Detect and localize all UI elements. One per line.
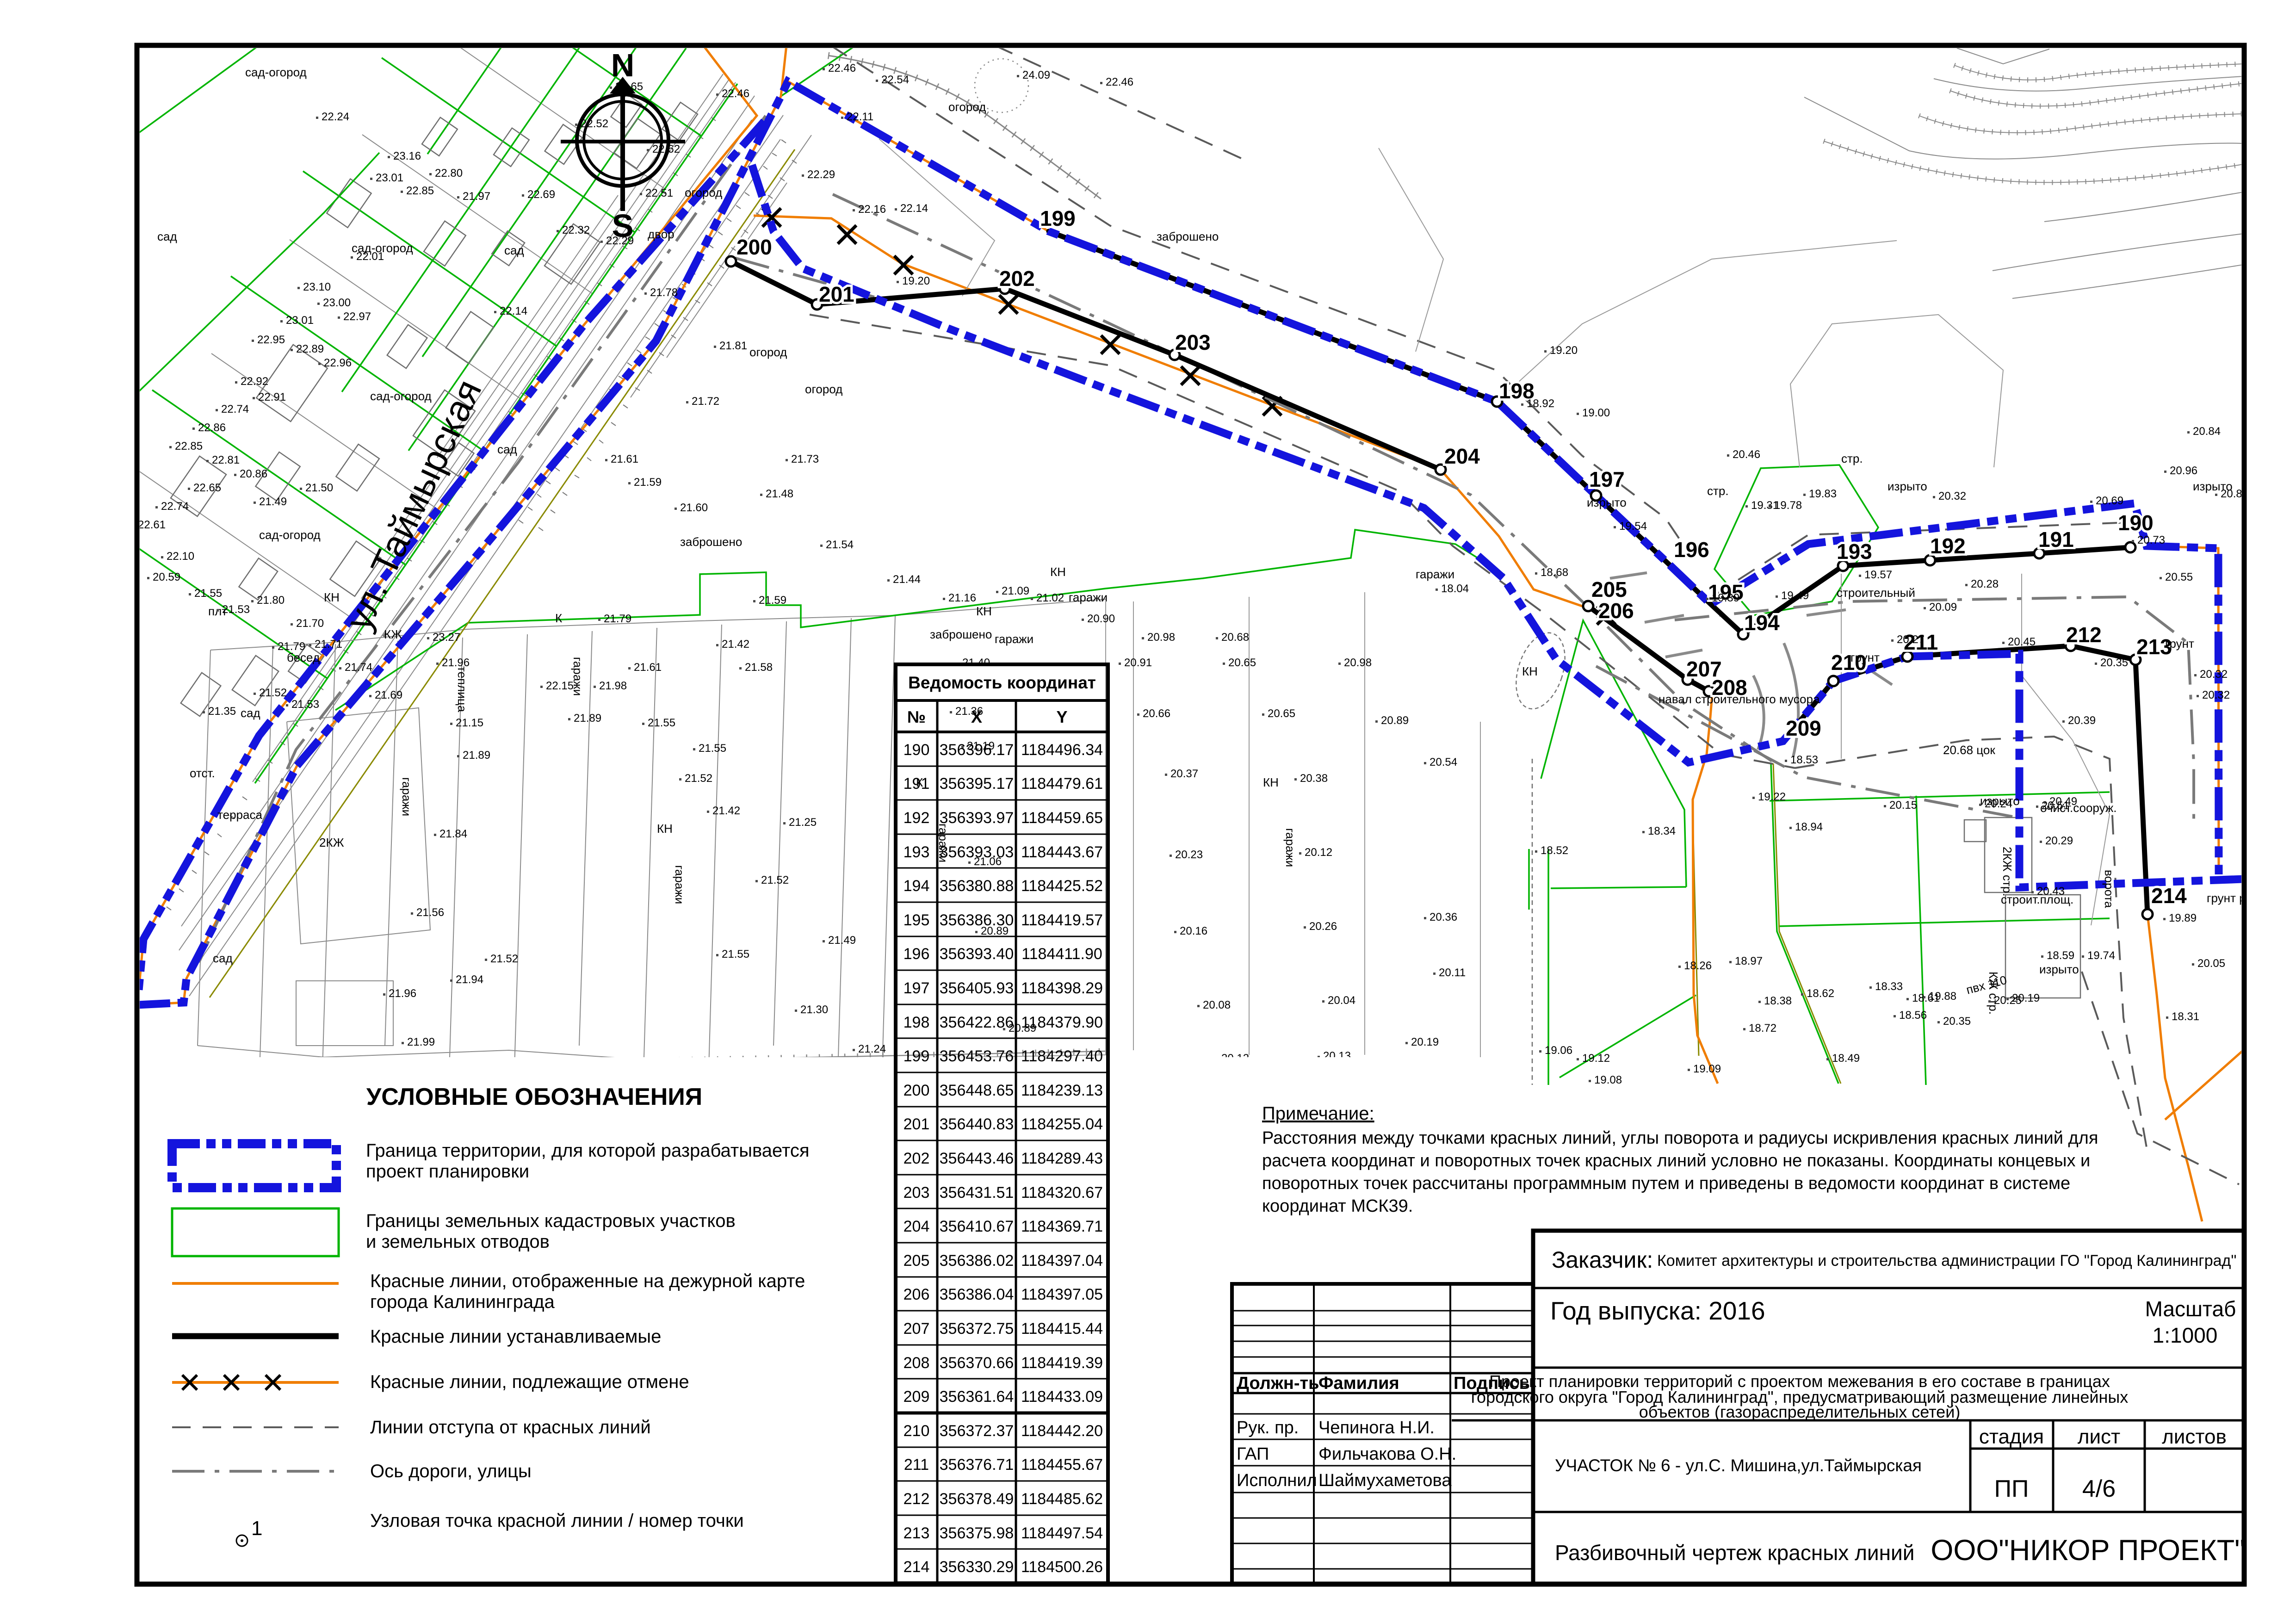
svg-text:199: 199: [904, 1047, 930, 1065]
svg-text:1184239.13: 1184239.13: [1021, 1082, 1103, 1099]
svg-text:листов: листов: [2162, 1425, 2227, 1448]
svg-text:22.61: 22.61: [138, 519, 166, 531]
svg-text:№: №: [907, 707, 926, 726]
svg-text:21.16: 21.16: [948, 592, 976, 604]
svg-text:21.25: 21.25: [789, 816, 817, 829]
svg-text:21.71: 21.71: [315, 638, 342, 650]
svg-text:21.69: 21.69: [375, 689, 402, 701]
svg-text:20.90: 20.90: [1087, 613, 1115, 625]
svg-text:197: 197: [904, 979, 930, 997]
svg-text:УЧАСТОК № 6 - ул.С. Мишина,ул.: УЧАСТОК № 6 - ул.С. Мишина,ул.Таймырская: [1555, 1456, 1922, 1475]
svg-text:координат МСК39.: координат МСК39.: [1262, 1196, 1413, 1216]
svg-text:1184289.43: 1184289.43: [1021, 1150, 1103, 1167]
svg-text:18.04: 18.04: [1441, 582, 1469, 595]
svg-text:20.04: 20.04: [1328, 994, 1355, 1007]
svg-text:грунт: грунт: [1850, 650, 1880, 664]
svg-text:18.49: 18.49: [1832, 1052, 1860, 1065]
svg-text:сад-огород: сад-огород: [259, 528, 321, 542]
svg-text:19.78: 19.78: [1774, 499, 1802, 512]
svg-text:проект планировки: проект планировки: [366, 1161, 529, 1182]
svg-text:гаражи: гаражи: [995, 632, 1034, 646]
svg-text:19.49: 19.49: [1781, 589, 1809, 602]
svg-text:206: 206: [1598, 599, 1634, 623]
svg-text:1184496.34: 1184496.34: [1021, 741, 1103, 759]
svg-text:огород: огород: [685, 186, 722, 199]
svg-text:22.92: 22.92: [241, 375, 268, 388]
svg-text:заброшено: заброшено: [680, 535, 742, 549]
svg-text:Исполнил: Исполнил: [1237, 1471, 1317, 1490]
svg-text:Ось дороги, улицы: Ось дороги, улицы: [370, 1461, 532, 1481]
svg-text:20.59: 20.59: [153, 571, 180, 583]
svg-text:21.30: 21.30: [800, 1004, 828, 1016]
svg-text:20.55: 20.55: [2165, 571, 2193, 583]
svg-text:20.26: 20.26: [1309, 920, 1337, 933]
svg-text:208: 208: [904, 1354, 930, 1372]
svg-text:1184411.90: 1184411.90: [1021, 945, 1102, 963]
svg-text:22.95: 22.95: [257, 334, 285, 346]
svg-text:198: 198: [904, 1014, 930, 1031]
svg-text:20.68: 20.68: [1221, 631, 1249, 644]
svg-text:1184419.57: 1184419.57: [1021, 911, 1103, 929]
svg-text:205: 205: [1591, 577, 1627, 601]
svg-text:20.08: 20.08: [1203, 999, 1231, 1011]
svg-text:356395.17: 356395.17: [940, 775, 1014, 793]
svg-text:21.73: 21.73: [791, 453, 819, 465]
svg-text:Красные линии, отображенные на: Красные линии, отображенные на дежурной …: [370, 1271, 805, 1291]
svg-text:200: 200: [736, 235, 772, 259]
svg-text:199: 199: [1040, 206, 1076, 230]
svg-text:огород: огород: [948, 100, 986, 114]
svg-text:194: 194: [1744, 611, 1780, 635]
svg-text:заброшено: заброшено: [1157, 229, 1219, 243]
svg-text:1184255.04: 1184255.04: [1021, 1115, 1103, 1133]
svg-text:23.10: 23.10: [303, 281, 331, 293]
svg-text:города Калининграда: города Калининграда: [370, 1292, 555, 1312]
svg-text:191: 191: [904, 775, 930, 793]
svg-text:22.85: 22.85: [406, 185, 434, 197]
svg-text:22.46: 22.46: [1106, 76, 1133, 88]
svg-text:21.89: 21.89: [574, 712, 601, 725]
svg-text:356448.65: 356448.65: [940, 1082, 1014, 1099]
svg-text:203: 203: [1175, 330, 1211, 354]
svg-text:193: 193: [904, 843, 930, 861]
svg-text:20.45: 20.45: [2008, 636, 2036, 648]
svg-text:200: 200: [904, 1082, 930, 1099]
svg-text:20.32: 20.32: [2200, 668, 2228, 681]
svg-text:21.48: 21.48: [766, 488, 793, 500]
svg-text:1184397.04: 1184397.04: [1021, 1252, 1103, 1270]
svg-text:22.86: 22.86: [198, 421, 226, 434]
svg-text:1184369.71: 1184369.71: [1021, 1218, 1103, 1235]
svg-text:N: N: [611, 47, 635, 83]
svg-text:21.54: 21.54: [826, 539, 854, 551]
svg-text:21.53: 21.53: [291, 698, 319, 711]
svg-text:197: 197: [1589, 467, 1625, 491]
svg-text:20.65: 20.65: [1268, 707, 1295, 720]
svg-text:сад: сад: [504, 243, 524, 257]
svg-text:356361.64: 356361.64: [940, 1388, 1014, 1406]
svg-text:356422.86: 356422.86: [940, 1014, 1014, 1031]
svg-text:195: 195: [904, 911, 930, 929]
svg-text:КН: КН: [324, 590, 340, 604]
svg-text:4/6: 4/6: [2082, 1475, 2116, 1502]
svg-text:19.22: 19.22: [1758, 791, 1786, 803]
svg-text:Границы земельных кадастровых: Границы земельных кадастровых участков: [366, 1211, 736, 1231]
svg-text:20.89: 20.89: [1381, 714, 1409, 727]
svg-text:1184415.44: 1184415.44: [1021, 1320, 1103, 1338]
svg-text:356443.46: 356443.46: [940, 1150, 1014, 1167]
svg-text:21.49: 21.49: [828, 934, 856, 947]
svg-text:1184433.09: 1184433.09: [1021, 1388, 1103, 1406]
svg-text:22.46: 22.46: [722, 87, 749, 100]
svg-text:21.15: 21.15: [456, 717, 483, 729]
svg-text:изрыто: изрыто: [1888, 479, 1927, 493]
svg-text:21.61: 21.61: [611, 453, 638, 465]
svg-text:20.73: 20.73: [2137, 534, 2165, 546]
svg-text:18.92: 18.92: [1527, 397, 1554, 410]
svg-text:Узловая точка красной линии /: Узловая точка красной линии / номер точк…: [370, 1511, 744, 1531]
svg-text:18.72: 18.72: [1749, 1022, 1776, 1035]
svg-text:20.54: 20.54: [1430, 756, 1457, 768]
svg-text:22.62: 22.62: [652, 143, 680, 155]
svg-text:22.65: 22.65: [615, 81, 643, 93]
svg-text:20.51: 20.51: [2042, 799, 2069, 812]
svg-text:изрыто: изрыто: [2039, 962, 2079, 976]
svg-text:20.12: 20.12: [1305, 846, 1332, 859]
svg-text:21.55: 21.55: [648, 717, 675, 729]
svg-text:расчета координат и поворотных: расчета координат и поворотных точек кра…: [1262, 1151, 2090, 1171]
svg-text:19.74: 19.74: [2087, 949, 2115, 962]
svg-text:сад-огород: сад-огород: [370, 389, 432, 403]
svg-text:18.26: 18.26: [1684, 960, 1712, 972]
svg-text:21.09: 21.09: [1002, 585, 1029, 597]
svg-text:1184379.90: 1184379.90: [1021, 1014, 1103, 1031]
svg-text:22.74: 22.74: [161, 500, 189, 513]
svg-text:19.54: 19.54: [1619, 520, 1647, 533]
svg-text:2КЖ стр.: 2КЖ стр.: [2000, 847, 2014, 896]
svg-text:сад: сад: [213, 951, 233, 965]
svg-text:21.44: 21.44: [893, 573, 921, 586]
svg-text:212: 212: [2066, 623, 2102, 647]
svg-text:20.23: 20.23: [1175, 849, 1203, 861]
svg-text:21.52: 21.52: [259, 687, 287, 699]
svg-text:191: 191: [2038, 527, 2074, 551]
svg-text:23.01: 23.01: [376, 172, 403, 184]
svg-text:212: 212: [904, 1490, 930, 1508]
svg-text:Подпись: Подпись: [1454, 1374, 1530, 1393]
svg-text:X: X: [971, 707, 982, 726]
svg-text:1184297.40: 1184297.40: [1021, 1047, 1103, 1065]
svg-text:Граница территории, для которо: Граница территории, для которой разрабат…: [366, 1140, 809, 1161]
svg-text:21.59: 21.59: [634, 476, 662, 489]
svg-text:356440.83: 356440.83: [940, 1115, 1014, 1133]
svg-text:18.68: 18.68: [1541, 566, 1568, 579]
svg-text:356410.67: 356410.67: [940, 1218, 1014, 1235]
svg-text:20.24: 20.24: [1985, 798, 2012, 810]
svg-text:22.32: 22.32: [562, 224, 590, 236]
svg-text:1184455.67: 1184455.67: [1021, 1456, 1103, 1474]
svg-text:192: 192: [1930, 534, 1966, 558]
svg-text:20.84: 20.84: [2193, 425, 2221, 438]
svg-text:356386.30: 356386.30: [940, 911, 1014, 929]
svg-text:21.84: 21.84: [439, 828, 467, 840]
svg-text:209: 209: [904, 1388, 930, 1406]
svg-text:18.34: 18.34: [1648, 825, 1676, 837]
svg-text:1184397.05: 1184397.05: [1021, 1286, 1103, 1303]
svg-text:18.52: 18.52: [1541, 844, 1568, 857]
svg-text:21.42: 21.42: [712, 805, 740, 817]
svg-text:20.39: 20.39: [2068, 714, 2096, 727]
svg-text:20.16: 20.16: [1180, 925, 1207, 937]
svg-text:356378.49: 356378.49: [940, 1490, 1014, 1508]
svg-text:огород: огород: [749, 345, 787, 359]
svg-text:Линии отступа от красных линий: Линии отступа от красных линий: [370, 1417, 651, 1437]
svg-text:ГАП: ГАП: [1237, 1444, 1269, 1464]
svg-text:22.16: 22.16: [858, 203, 886, 216]
svg-text:объектов (газораспределительны: объектов (газораспределительных сетей): [1639, 1402, 1961, 1421]
svg-text:21.78: 21.78: [650, 286, 678, 299]
svg-text:1184443.67: 1184443.67: [1021, 843, 1103, 861]
svg-text:21.02: 21.02: [1036, 592, 1064, 604]
svg-text:21.79: 21.79: [278, 640, 305, 653]
svg-text:19.12: 19.12: [1582, 1052, 1610, 1065]
svg-text:22.10: 22.10: [167, 550, 194, 563]
svg-text:21.94: 21.94: [456, 973, 483, 986]
svg-text:и земельных отводов: и земельных отводов: [366, 1232, 550, 1252]
svg-text:заброшено: заброшено: [930, 627, 992, 641]
svg-text:207: 207: [904, 1320, 930, 1338]
svg-text:1:1000: 1:1000: [2153, 1323, 2218, 1347]
svg-text:22.24: 22.24: [322, 111, 349, 123]
svg-text:18.31: 18.31: [2172, 1010, 2199, 1023]
svg-text:23.00: 23.00: [323, 297, 351, 309]
svg-text:22.14: 22.14: [500, 305, 527, 317]
svg-text:22.81: 22.81: [212, 454, 240, 466]
svg-text:356453.76: 356453.76: [940, 1047, 1014, 1065]
svg-text:21.98: 21.98: [599, 680, 627, 692]
svg-text:205: 205: [904, 1252, 930, 1270]
svg-text:23.01: 23.01: [286, 314, 314, 327]
svg-text:21.50: 21.50: [305, 482, 333, 494]
svg-text:18.38: 18.38: [1764, 995, 1792, 1007]
svg-text:19.39: 19.39: [1712, 592, 1739, 604]
svg-text:терраса: терраса: [217, 808, 262, 822]
svg-text:21.55: 21.55: [722, 948, 749, 960]
svg-text:20.86: 20.86: [240, 468, 267, 480]
svg-text:Ведомость координат: Ведомость координат: [908, 673, 1096, 692]
svg-text:КН: КН: [657, 822, 673, 836]
svg-text:Чепинога Н.И.: Чепинога Н.И.: [1318, 1418, 1435, 1437]
svg-text:202: 202: [904, 1150, 930, 1167]
svg-text:1184459.65: 1184459.65: [1021, 809, 1103, 827]
svg-text:24.09: 24.09: [1022, 69, 1050, 81]
svg-text:21.24: 21.24: [858, 1043, 886, 1055]
svg-text:Комитет архитектуры и строител: Комитет архитектуры и строительства адми…: [1657, 1252, 2236, 1270]
svg-text:1184419.39: 1184419.39: [1021, 1354, 1103, 1372]
svg-text:356380.88: 356380.88: [940, 877, 1014, 895]
svg-text:21.81: 21.81: [719, 340, 747, 352]
svg-text:356393.40: 356393.40: [940, 945, 1014, 963]
svg-text:сад: сад: [241, 706, 260, 720]
svg-text:огород: огород: [805, 382, 842, 396]
svg-text:22.96: 22.96: [324, 357, 352, 369]
svg-text:22.52: 22.52: [581, 118, 608, 130]
svg-text:22.14: 22.14: [900, 202, 928, 215]
svg-text:21.52: 21.52: [490, 953, 518, 965]
svg-text:214: 214: [2151, 884, 2187, 908]
svg-text:203: 203: [904, 1184, 930, 1202]
svg-text:22.74: 22.74: [221, 403, 249, 415]
svg-text:Расстояния между точками красн: Расстояния между точками красных линий, …: [1262, 1128, 2098, 1148]
svg-text:1184479.61: 1184479.61: [1021, 775, 1103, 793]
svg-text:356376.71: 356376.71: [940, 1456, 1014, 1474]
svg-text:356393.03: 356393.03: [940, 843, 1014, 861]
svg-text:Фамилия: Фамилия: [1318, 1374, 1399, 1393]
svg-text:204: 204: [1444, 444, 1480, 468]
svg-text:20.35: 20.35: [1943, 1015, 1971, 1028]
svg-text:18.59: 18.59: [2047, 949, 2074, 962]
svg-text:Масштаб: Масштаб: [2145, 1297, 2236, 1321]
svg-text:Y: Y: [1056, 707, 1067, 726]
svg-text:ООО"НИКОР ПРОЕКТ": ООО"НИКОР ПРОЕКТ": [1931, 1534, 2245, 1567]
svg-text:теплица: теплица: [455, 666, 469, 712]
svg-text:210: 210: [904, 1422, 930, 1440]
svg-text:21.52: 21.52: [685, 772, 712, 785]
svg-text:22.65: 22.65: [193, 482, 221, 494]
svg-text:стр.: стр.: [1841, 452, 1863, 465]
svg-text:19.20: 19.20: [1550, 344, 1578, 357]
svg-text:201: 201: [819, 282, 854, 306]
svg-text:21.79: 21.79: [604, 613, 631, 625]
svg-text:КН: КН: [1263, 775, 1279, 789]
svg-text:18.33: 18.33: [1875, 980, 1903, 993]
svg-text:21.42: 21.42: [722, 638, 749, 650]
svg-text:196: 196: [1674, 538, 1709, 562]
svg-text:К: К: [555, 611, 562, 625]
svg-text:214: 214: [904, 1558, 930, 1576]
svg-text:КН: КН: [1522, 664, 1538, 678]
svg-text:Красные линии устанавливаемые: Красные линии устанавливаемые: [370, 1326, 661, 1347]
svg-text:ПП: ПП: [1994, 1475, 2029, 1502]
svg-text:21.99: 21.99: [407, 1036, 435, 1048]
svg-text:19.00: 19.00: [1582, 407, 1610, 419]
svg-text:20.05: 20.05: [2197, 957, 2225, 970]
svg-text:20.19: 20.19: [2012, 992, 2040, 1004]
svg-text:21.74: 21.74: [345, 661, 372, 674]
svg-text:20.46: 20.46: [1733, 448, 1760, 461]
svg-text:20.69: 20.69: [2096, 495, 2123, 507]
svg-text:двор: двор: [648, 227, 675, 241]
svg-text:20.27: 20.27: [1897, 633, 1925, 646]
svg-text:22.11: 22.11: [847, 111, 873, 123]
svg-text:21.96: 21.96: [389, 987, 416, 1000]
svg-text:сад-огород: сад-огород: [245, 65, 307, 79]
svg-text:356372.75: 356372.75: [940, 1320, 1014, 1338]
svg-text:22.89: 22.89: [296, 343, 324, 355]
svg-text:изрыто: изрыто: [1587, 496, 1627, 509]
svg-text:21.55: 21.55: [699, 742, 726, 755]
svg-text:356386.04: 356386.04: [940, 1286, 1014, 1303]
svg-text:20.98: 20.98: [1147, 631, 1175, 644]
svg-text:213: 213: [904, 1524, 930, 1542]
svg-text:206: 206: [904, 1286, 930, 1303]
svg-text:1184497.54: 1184497.54: [1021, 1524, 1103, 1542]
svg-text:Заказчик:: Заказчик:: [1552, 1247, 1653, 1273]
svg-text:23.27: 23.27: [433, 631, 460, 644]
svg-text:20.65: 20.65: [1228, 657, 1256, 669]
svg-text:21.59: 21.59: [759, 594, 786, 607]
svg-text:20.28: 20.28: [1971, 578, 1999, 590]
svg-text:192: 192: [904, 809, 930, 827]
svg-text:1184500.26: 1184500.26: [1021, 1558, 1103, 1576]
svg-text:1184485.62: 1184485.62: [1021, 1490, 1103, 1508]
svg-text:Шаймухаметова: Шаймухаметова: [1318, 1471, 1452, 1490]
svg-text:20.36: 20.36: [1430, 911, 1457, 923]
svg-text:22.01: 22.01: [356, 250, 384, 263]
svg-text:19.20: 19.20: [902, 275, 930, 287]
svg-text:21.58: 21.58: [745, 661, 773, 674]
svg-text:22.80: 22.80: [435, 167, 463, 180]
svg-text:204: 204: [904, 1218, 930, 1235]
svg-text:356405.93: 356405.93: [940, 979, 1014, 997]
svg-text:КН: КН: [976, 604, 992, 618]
svg-text:356372.37: 356372.37: [940, 1422, 1014, 1440]
svg-text:сад: сад: [157, 229, 177, 243]
svg-text:20.15: 20.15: [1889, 799, 1917, 811]
svg-text:21.49: 21.49: [259, 496, 287, 508]
svg-text:22.97: 22.97: [343, 310, 371, 323]
svg-text:19.08: 19.08: [1594, 1074, 1622, 1086]
svg-text:1184442.20: 1184442.20: [1021, 1422, 1103, 1440]
svg-text:356370.66: 356370.66: [940, 1354, 1014, 1372]
svg-text:19.83: 19.83: [1809, 488, 1837, 500]
svg-text:18.94: 18.94: [1795, 821, 1823, 833]
svg-text:356330.29: 356330.29: [940, 1558, 1014, 1576]
svg-text:20.37: 20.37: [1170, 768, 1198, 780]
svg-text:21.70: 21.70: [296, 617, 324, 630]
svg-text:гаражи: гаражи: [673, 865, 687, 904]
svg-text:201: 201: [904, 1115, 930, 1133]
svg-text:грунт: грунт: [2165, 637, 2194, 650]
svg-text:194: 194: [904, 877, 930, 895]
svg-text:20.43: 20.43: [2037, 885, 2065, 898]
svg-text:19.06: 19.06: [1545, 1044, 1572, 1057]
svg-text:2КЖ: 2КЖ: [319, 836, 344, 849]
svg-text:356431.51: 356431.51: [940, 1184, 1014, 1202]
svg-text:20.09: 20.09: [1929, 601, 1957, 613]
svg-text:22.29: 22.29: [807, 168, 835, 181]
svg-text:1184398.29: 1184398.29: [1021, 979, 1103, 997]
svg-text:20.98: 20.98: [1344, 657, 1372, 669]
svg-text:356396.17: 356396.17: [940, 741, 1014, 759]
svg-text:21.97: 21.97: [463, 190, 490, 203]
svg-text:21.61: 21.61: [634, 661, 662, 674]
svg-text:лист: лист: [2078, 1425, 2120, 1448]
svg-text:20.91: 20.91: [1124, 657, 1152, 669]
svg-text:стадия: стадия: [1979, 1425, 2044, 1448]
svg-text:21.56: 21.56: [416, 906, 444, 919]
svg-text:20.66: 20.66: [1143, 707, 1170, 720]
svg-text:22.69: 22.69: [527, 188, 555, 201]
svg-text:21.96: 21.96: [442, 657, 470, 669]
svg-text:навал строительного мусора: навал строительного мусора: [1659, 692, 1820, 706]
svg-text:гаражи: гаражи: [1069, 590, 1108, 604]
svg-text:20.38: 20.38: [1300, 772, 1328, 785]
svg-text:202: 202: [999, 266, 1035, 291]
svg-text:УСЛОВНЫЕ ОБОЗНАЧЕНИЯ: УСЛОВНЫЕ ОБОЗНАЧЕНИЯ: [366, 1084, 702, 1110]
svg-text:19.09: 19.09: [1693, 1063, 1721, 1075]
svg-text:КЖ: КЖ: [384, 627, 402, 641]
